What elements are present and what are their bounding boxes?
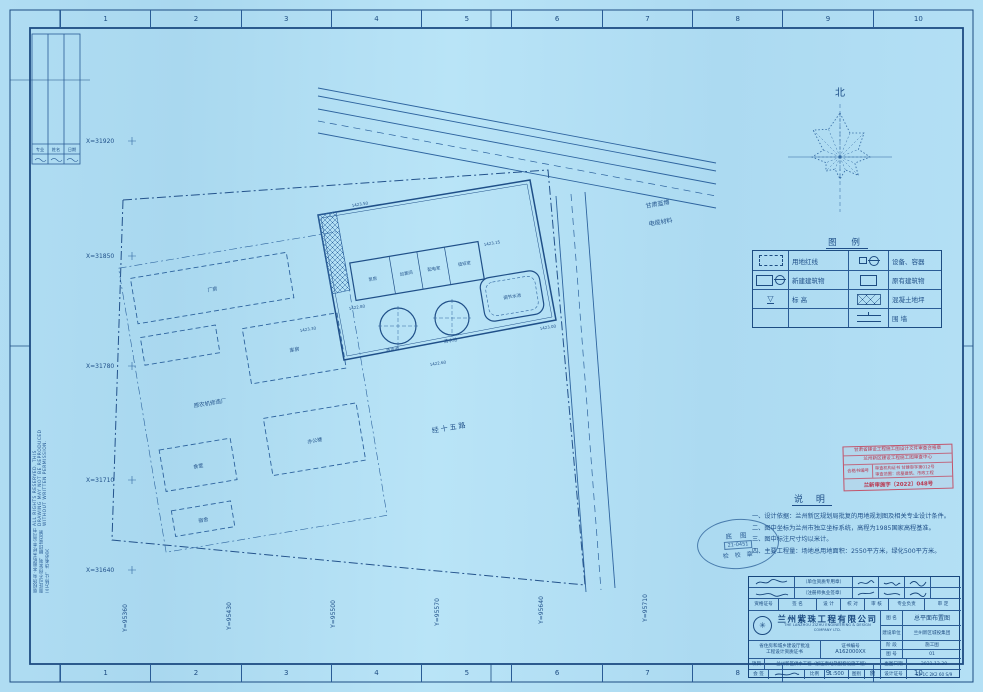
signbar-col3: 日期 xyxy=(68,147,76,153)
empty-cell xyxy=(931,588,961,599)
sheet-number-label: 图 号 xyxy=(881,650,903,659)
x-coord-label: X=31780 xyxy=(86,363,114,370)
header-chief: 专业负责 xyxy=(889,599,925,611)
oval-stamp-line3: 检 校 章 xyxy=(723,548,755,559)
grid-band-top: 12345678910 xyxy=(60,10,963,28)
grid-number: 2 xyxy=(150,10,240,28)
header-signature: 签 名 xyxy=(779,599,817,611)
elevation-label: 1423.30 xyxy=(299,325,317,333)
oval-stamp-line1: 底 图 xyxy=(725,529,750,541)
grid-number: 5 xyxy=(421,10,511,28)
grid-number: 4 xyxy=(331,664,421,682)
drawing-type-label: 图别 xyxy=(849,670,865,679)
blueprint-sheet: 专业 姓名 日期 泵房 xyxy=(0,0,983,692)
sheet-number-value: 01 xyxy=(903,650,961,659)
company-seal-icon xyxy=(753,616,772,635)
legend-label: 原有建筑物 xyxy=(889,271,941,289)
grid-number: 4 xyxy=(331,10,421,28)
pump-station-building: 泵房 加氯间 配电室 值班室 xyxy=(350,242,484,301)
certificate-line1: 省住房和城乡建设厅批准 xyxy=(759,644,810,649)
building-label-factory: 厂房 xyxy=(207,285,218,294)
grid-number: 1 xyxy=(60,10,150,28)
grid-number: 5 xyxy=(421,664,511,682)
client-label: 建设单位 xyxy=(881,626,903,641)
y-coord-label: Y=95710 xyxy=(642,594,649,623)
header-qualification: 资格证号 xyxy=(749,599,779,611)
roads xyxy=(318,88,716,592)
note-line: 一、设计依据：兰州新区规划局批复的用地规划图及相关专业设计条件。 xyxy=(752,511,952,523)
legend-row: 新建建筑物 原有建筑物 xyxy=(753,270,941,289)
elevation-label: 1422.80 xyxy=(348,303,366,311)
signature-handwriting xyxy=(749,588,795,599)
neighbor-right-label-2: 电缆材料 xyxy=(648,216,673,228)
drawing-type-value: 施 xyxy=(865,670,881,679)
legend-label: 设备、容器 xyxy=(889,251,941,270)
signature-handwriting xyxy=(879,577,905,588)
notes-list: 一、设计依据：兰州新区规划局批复的用地规划图及相关专业设计条件。二、图中坐标为兰… xyxy=(752,511,952,557)
legend-label: 新建建筑物 xyxy=(789,271,849,289)
seal-note-1: （单位资质专用章） xyxy=(795,577,853,588)
road-name-label: 经十五路 xyxy=(431,420,468,435)
stamp-details: 审查机构证书 甘建审字第012号 审查范围：房屋建筑、市政工程 xyxy=(873,463,952,478)
title-block: （单位资质专用章） （注册师执业签章） 资格证号 签 名 设 计 校 对 审 核… xyxy=(748,576,960,678)
signbar-col2: 姓名 xyxy=(52,146,60,153)
x-coord-label: X=31850 xyxy=(86,253,114,260)
wind-rose: 北 xyxy=(788,87,892,212)
empty-cell xyxy=(931,577,961,588)
notes-panel: 说 明 一、设计依据：兰州新区规划局批复的用地规划图及相关专业设计条件。二、图中… xyxy=(752,487,952,557)
grid-number: 6 xyxy=(511,664,601,682)
y-coord-label: Y=95360 xyxy=(122,604,129,633)
note-line: 三、图中标注尺寸均以米计。 xyxy=(752,534,952,546)
signature-handwriting xyxy=(749,577,795,588)
concrete-hatch-icon xyxy=(849,290,889,308)
date-value: 2021.12.30 xyxy=(907,659,961,670)
basin-label: 调节水池 xyxy=(503,291,522,301)
grid-number: 9 xyxy=(782,10,872,28)
scale-label: 比例 xyxy=(805,670,825,679)
header-design: 设 计 xyxy=(817,599,841,611)
signature-handwriting xyxy=(853,577,879,588)
legend-table: 用地红线 设备、容器 新建建筑物 原有建筑物 标 高 混凝土地坪 xyxy=(752,250,942,328)
x-coord-label: X=31710 xyxy=(86,477,114,484)
certificate-line2: 工程设计资质证书 xyxy=(766,650,803,655)
drawing-title-value: 总平面布置图 xyxy=(903,611,961,626)
grid-number: 10 xyxy=(873,10,963,28)
note-line: 四、主要工程量：场地总用地面积：2550平方米，绿化500平方米。 xyxy=(752,546,952,558)
design-cert-label: 设计证号 xyxy=(881,670,907,679)
legend-title: 图 例 xyxy=(752,236,942,248)
grid-number: 8 xyxy=(692,10,782,28)
legend-label: 用地红线 xyxy=(789,251,849,270)
legend-panel: 图 例 用地红线 设备、容器 新建建筑物 原有建筑物 标 高 混凝土地坪 xyxy=(752,236,942,328)
company-cell: 兰州紫珠工程有限公司 THE LANZHOU ZIZHU ENGINEERING… xyxy=(749,611,881,641)
grid-number: 7 xyxy=(602,664,692,682)
site-boundary-redline xyxy=(112,170,585,585)
certificate-number-cell: 证书编号 A162000XX xyxy=(821,641,881,659)
room-label-power: 配电室 xyxy=(427,264,442,273)
countersign-label: 会 签 xyxy=(749,670,769,679)
coordinate-cross-marks xyxy=(128,137,136,574)
notes-title: 说 明 xyxy=(792,492,832,506)
tank1-label: 清水池 xyxy=(385,345,400,354)
room-label-chlorine: 加氯间 xyxy=(399,269,413,278)
building-label-canteen: 食堂 xyxy=(193,462,204,471)
y-coord-label: Y=95430 xyxy=(226,602,233,631)
countersign-strip-labels: 专业 姓名 日期 xyxy=(36,146,76,153)
new-building-symbol-icon xyxy=(753,271,789,289)
legend-label: 混凝土地坪 xyxy=(889,290,941,308)
building-label-office: 办公楼 xyxy=(307,436,323,445)
redline-symbol-icon xyxy=(753,251,789,270)
review-approval-stamp: 甘肃省建设工程施工图设计文件审查合格章 兰州新区建设工程施工图审查中心 合格书编… xyxy=(842,444,953,492)
project-value: 兰州新区供水工程（加压泵站及配套设施工程） xyxy=(765,659,881,670)
neighbor-right-label-1: 甘肃蓝博 xyxy=(645,198,670,210)
building-label-warehouse: 库房 xyxy=(289,346,300,355)
signature-handwriting xyxy=(853,588,879,599)
plan-annotations: 经十五路 甘肃蓝博 电缆材料 X=31920 X=31850 X=31780 X… xyxy=(86,137,673,633)
road-centerline-right xyxy=(571,194,601,590)
equipment-symbol-icon xyxy=(849,251,889,270)
existing-building-symbol-icon xyxy=(849,271,889,289)
elevation-mark-icon xyxy=(753,290,789,308)
grid-number: 2 xyxy=(150,664,240,682)
grid-number: 7 xyxy=(602,10,692,28)
regulating-basin: 调节水池 xyxy=(479,269,545,322)
stage-label: 阶 段 xyxy=(881,641,903,650)
north-label: 北 xyxy=(835,87,845,99)
wind-rose-polygon xyxy=(812,113,870,179)
road-centerline-top xyxy=(318,121,716,196)
signature-handwriting xyxy=(769,670,805,679)
company-name-english: THE LANZHOU ZIZHU ENGINEERING & DESIGN C… xyxy=(775,623,880,633)
client-value: 兰州新区城投集团 xyxy=(903,626,961,641)
certificate-number-value: A162000XX xyxy=(835,650,865,655)
signature-handwriting xyxy=(905,577,931,588)
stamp-number-label: 合格书编号 xyxy=(844,465,873,479)
x-coord-label: X=31640 xyxy=(86,567,114,574)
signature-handwriting xyxy=(879,588,905,599)
design-cert-value: S2-1C 2K2 60 S/9 xyxy=(907,670,961,679)
stage-value: 施工图 xyxy=(903,641,961,650)
hatched-concrete-strip xyxy=(318,212,350,295)
legend-row: 用地红线 设备、容器 xyxy=(753,251,941,270)
grid-number: 1 xyxy=(60,664,150,682)
legend-row: 围 墙 xyxy=(753,308,941,327)
date-label: 出图日期 xyxy=(881,659,907,670)
header-approve: 审 定 xyxy=(925,599,961,611)
legend-empty-cell xyxy=(789,309,849,327)
elevation-label: 1423.15 xyxy=(483,239,501,247)
grid-number: 3 xyxy=(241,664,331,682)
signature-handwriting xyxy=(905,588,931,599)
y-coord-label: Y=95500 xyxy=(330,600,337,629)
legend-empty-cell xyxy=(753,309,789,327)
certificate-cell: 省住房和城乡建设厅批准 工程设计资质证书 xyxy=(749,641,821,659)
wall-symbol-icon xyxy=(849,309,889,327)
copyright-note: 版权所有·本图纸未经本公司书面许可不得复制、翻印或向第三方转让，违者必究 ALL… xyxy=(33,425,51,593)
header-review: 审 核 xyxy=(865,599,889,611)
room-label-duty: 值班室 xyxy=(457,259,472,268)
neighbor-left-label: 原农机修造厂 xyxy=(193,396,227,409)
elevation-label: 1422.60 xyxy=(429,359,447,367)
building-label-dorm: 宿舍 xyxy=(198,516,209,525)
legend-label: 标 高 xyxy=(789,290,849,308)
legend-row: 标 高 混凝土地坪 xyxy=(753,289,941,308)
note-line: 二、图中坐标为兰州市独立坐标系统，高程为1985国家高程基准。 xyxy=(752,523,952,535)
y-coord-label: Y=95640 xyxy=(538,596,545,625)
y-coord-label: Y=95570 xyxy=(434,598,441,627)
grid-number: 6 xyxy=(511,10,601,28)
room-label-pump: 泵房 xyxy=(368,275,378,283)
legend-label: 围 墙 xyxy=(889,309,941,327)
x-coord-label: X=31920 xyxy=(86,138,114,145)
signbar-col1: 专业 xyxy=(36,146,44,153)
copyright-en: ALL RIGHTS RESERVED. THIS DRAWING MAY NO… xyxy=(33,425,51,526)
clear-water-tanks: 清水池 清水池 xyxy=(378,299,471,354)
drawing-title-label: 图 名 xyxy=(881,611,903,626)
header-check: 校 对 xyxy=(841,599,865,611)
copyright-cn: 版权所有·本图纸未经本公司书面许可不得复制、翻印或向第三方转让，违者必究 xyxy=(33,527,51,593)
countersign-strip xyxy=(32,34,80,164)
project-label: 项目 xyxy=(749,659,765,670)
seal-note-2: （注册师执业签章） xyxy=(795,588,853,599)
scale-value: 1:500 xyxy=(825,670,849,679)
stamp-detail-line: 审查范围：房屋建筑、市政工程 xyxy=(875,469,950,477)
elevation-label: 1423.00 xyxy=(539,323,557,331)
wind-rose-rays xyxy=(812,113,870,179)
grid-number: 3 xyxy=(241,10,331,28)
